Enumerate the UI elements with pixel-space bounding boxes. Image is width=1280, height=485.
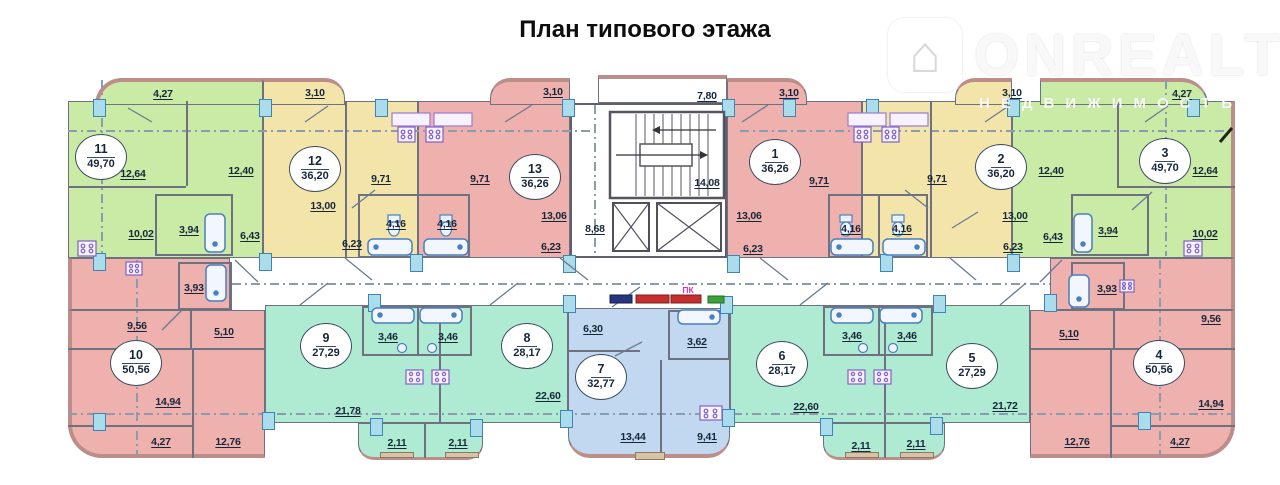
wall-column <box>259 99 272 117</box>
room-area-label: 3,94 <box>179 224 199 236</box>
room-area-label: 12,64 <box>120 168 145 180</box>
room-area-label: 3,10 <box>305 87 325 99</box>
room-area-label: 5,10 <box>1059 328 1079 340</box>
apartment-10-badge: 1050,56 <box>110 340 162 386</box>
room-area-label: 3,10 <box>779 87 799 99</box>
room-area-label: 6,43 <box>1043 231 1063 243</box>
apartment-number: 10 <box>122 348 150 363</box>
apartment-number: 11 <box>87 142 114 157</box>
room-area-label: 9,56 <box>127 320 147 332</box>
partition <box>190 310 192 348</box>
wall-column <box>783 99 796 117</box>
wall-column <box>933 295 946 313</box>
apartment-3-badge: 349,70 <box>1139 138 1191 184</box>
partition <box>186 101 188 186</box>
bathroom-walls <box>668 310 730 360</box>
wall-column <box>375 99 388 117</box>
room-area-label: 10,02 <box>1192 228 1217 240</box>
apartment-2-badge: 236,20 <box>975 144 1027 190</box>
room-area-label: 21,78 <box>335 405 360 417</box>
room-area-label: 12,40 <box>1038 165 1063 177</box>
room-area-label: 12,64 <box>1192 165 1217 177</box>
room-area-label: 22,60 <box>793 401 818 413</box>
apartment-area-value: 28,17 <box>768 365 796 379</box>
wall-column <box>410 254 423 272</box>
room-area-label: 14,94 <box>1198 398 1223 410</box>
partition <box>68 348 265 350</box>
wall-column <box>880 254 893 272</box>
room-area-label: 2,11 <box>387 437 406 449</box>
room-area-label: 9,71 <box>470 173 490 185</box>
wall-column <box>720 296 733 314</box>
apartment-11-balcony <box>95 78 263 105</box>
room-area-label: 8,68 <box>585 223 605 235</box>
room-area-label: 5,10 <box>214 326 234 338</box>
room-area-label: 3,46 <box>438 331 458 343</box>
room-area-label: 6,23 <box>342 238 362 250</box>
apartment-area-value: 50,56 <box>1145 364 1173 378</box>
apartment-6-badge: 628,17 <box>756 341 808 387</box>
apartment-7-badge: 732,77 <box>575 354 627 400</box>
partition <box>417 194 419 258</box>
room-area-label: 4,27 <box>1170 436 1190 448</box>
room-area-label: 14,94 <box>155 396 180 408</box>
room-area-label: 3,46 <box>842 330 862 342</box>
utility-box-icons <box>610 295 724 303</box>
room-area-label: 9,71 <box>927 173 947 185</box>
balcony-sill <box>635 452 665 460</box>
wall-column <box>93 99 106 117</box>
apartment-area-value: 27,29 <box>958 367 986 381</box>
room-area-label: 22,60 <box>535 390 560 402</box>
wall-column <box>563 255 576 273</box>
room-area-label: 3,93 <box>184 282 204 294</box>
room-area-label: 13,00 <box>310 200 335 212</box>
wall-column <box>1007 99 1020 117</box>
partition <box>878 306 880 356</box>
wall-column <box>722 99 735 117</box>
apartment-8-badge: 828,17 <box>501 323 553 369</box>
room-area-label: 3,10 <box>543 86 563 98</box>
room-area-label: 3,94 <box>1098 225 1118 237</box>
room-area-label: 6,23 <box>1003 241 1023 253</box>
floor-plan-image: { "title": "План типового этажа", "water… <box>0 0 1280 485</box>
wall-column <box>262 412 275 430</box>
room-area-label: 3,10 <box>1002 87 1022 99</box>
apartment-number: 8 <box>517 331 538 346</box>
room-area-label: 2,11 <box>851 440 870 452</box>
partition <box>1030 348 1235 350</box>
partition <box>1117 186 1235 188</box>
wall-column <box>1044 294 1057 312</box>
room-area-label: 13,06 <box>736 210 761 222</box>
wall-column <box>563 295 576 313</box>
apartment-12-balcony <box>263 78 345 105</box>
partition <box>660 360 662 458</box>
room-area-label: 2,11 <box>906 438 925 450</box>
room-area-label: 14,08 <box>694 177 719 189</box>
wall-column <box>1007 254 1020 272</box>
apartment-number: 13 <box>521 162 549 177</box>
balcony-sill <box>845 452 879 458</box>
room-area-label: 9,71 <box>809 175 829 187</box>
room-area-label: 13,06 <box>541 210 566 222</box>
room-area-label: 3,46 <box>378 331 398 343</box>
apartment-number: 4 <box>1149 348 1170 363</box>
wall-column <box>866 99 879 117</box>
room-area-label: 9,56 <box>1201 313 1221 325</box>
apartment-area-value: 36,26 <box>521 178 549 192</box>
partition <box>1113 310 1115 348</box>
room-area-label: 12,76 <box>215 436 240 448</box>
room-area-label: 3,46 <box>897 330 917 342</box>
room-area-label: 4,27 <box>1172 88 1192 100</box>
apartment-number: 7 <box>591 362 612 377</box>
wall-column <box>562 99 575 117</box>
room-area-label: 13,00 <box>1002 210 1027 222</box>
partition <box>884 423 886 458</box>
partition <box>68 425 192 427</box>
apartment-area-value: 28,17 <box>513 347 541 361</box>
room-area-label: 12,40 <box>228 165 253 177</box>
room-area-label: 4,27 <box>153 88 173 100</box>
wall-column <box>727 255 740 273</box>
partition <box>424 423 426 458</box>
apartment-area-value: 49,70 <box>1151 162 1179 176</box>
balcony-sill <box>900 452 934 458</box>
apartment-area-value: 32,77 <box>587 378 615 392</box>
apartment-13-badge: 1336,26 <box>509 154 561 200</box>
room-area-label: 21,72 <box>992 400 1017 412</box>
room-area-label: 4,16 <box>386 218 406 230</box>
room-area-label: 6,23 <box>743 243 763 255</box>
apartment-number: 12 <box>301 154 329 169</box>
room-area-label: 4,16 <box>892 223 912 235</box>
axis-line <box>232 283 1050 285</box>
room-area-label: 12,76 <box>1064 436 1089 448</box>
partition <box>1110 425 1235 427</box>
apartment-9-badge: 927,29 <box>300 323 352 369</box>
wall-column <box>370 418 383 436</box>
balcony-sill <box>445 452 479 458</box>
axis-line <box>740 130 1235 132</box>
page-title: План типового этажа <box>519 16 770 44</box>
partition <box>417 306 419 356</box>
wall-column <box>368 294 381 312</box>
axis-line <box>68 413 1235 415</box>
apartment-number: 9 <box>316 331 337 346</box>
wall-column <box>1187 99 1200 117</box>
room-area-label: 6,30 <box>583 323 603 335</box>
wall-column <box>1138 412 1151 430</box>
room-area-label: 2,11 <box>448 437 467 449</box>
wall-column <box>722 409 735 427</box>
wall-column <box>930 417 943 435</box>
room-area-label: 4,16 <box>841 223 861 235</box>
partition <box>68 186 186 188</box>
balcony-sill <box>380 452 414 458</box>
room-area-label: 7,80 <box>697 90 717 102</box>
apartment-number: 6 <box>772 349 793 364</box>
partition <box>192 348 194 458</box>
apartment-area-value: 50,56 <box>122 364 150 378</box>
wall-column <box>259 253 272 271</box>
apartment-number: 1 <box>765 147 786 162</box>
apartment-12-badge: 1236,20 <box>289 146 341 192</box>
wall-column <box>93 413 106 431</box>
room-area-label: 9,41 <box>697 431 717 443</box>
wall-column <box>820 418 833 436</box>
wall-column <box>560 410 573 428</box>
room-area-label: 6,23 <box>541 241 561 253</box>
apartment-area-value: 36,26 <box>761 163 789 177</box>
fire-cabinet-label: ПК <box>682 285 693 295</box>
partition <box>1117 101 1119 186</box>
partition <box>345 101 347 258</box>
partition <box>878 194 880 258</box>
room-area-label: 6,43 <box>240 230 260 242</box>
axis-line <box>68 130 598 132</box>
apartment-area-value: 36,20 <box>301 170 329 184</box>
apartment-number: 5 <box>962 351 983 366</box>
room-area-label: 4,27 <box>151 436 171 448</box>
apartment-1-badge: 136,26 <box>749 139 801 185</box>
house-icon: ⌂ <box>909 29 940 81</box>
room-area-label: 13,44 <box>620 431 645 443</box>
room-area-label: 3,62 <box>687 336 707 348</box>
room-area-label: 9,71 <box>371 173 391 185</box>
wall-column <box>93 253 106 271</box>
apartment-number: 2 <box>991 152 1012 167</box>
apartment-5-badge: 527,29 <box>946 343 998 389</box>
watermark-logo-badge: ⌂ <box>888 18 962 92</box>
apartment-4-badge: 450,56 <box>1133 340 1185 386</box>
apartment-11-badge: 1149,70 <box>75 134 127 180</box>
wall-column <box>470 419 483 437</box>
apartment-area-value: 49,70 <box>87 158 115 172</box>
apartment-area-value: 27,29 <box>312 347 340 361</box>
apartment-area-value: 36,20 <box>987 168 1015 182</box>
room-area-label: 10,02 <box>128 228 153 240</box>
partition <box>568 350 640 352</box>
room-area-label: 4,16 <box>437 218 457 230</box>
partition <box>1110 348 1112 458</box>
apartment-number: 3 <box>1155 146 1176 161</box>
room-area-label: 3,93 <box>1097 283 1117 295</box>
